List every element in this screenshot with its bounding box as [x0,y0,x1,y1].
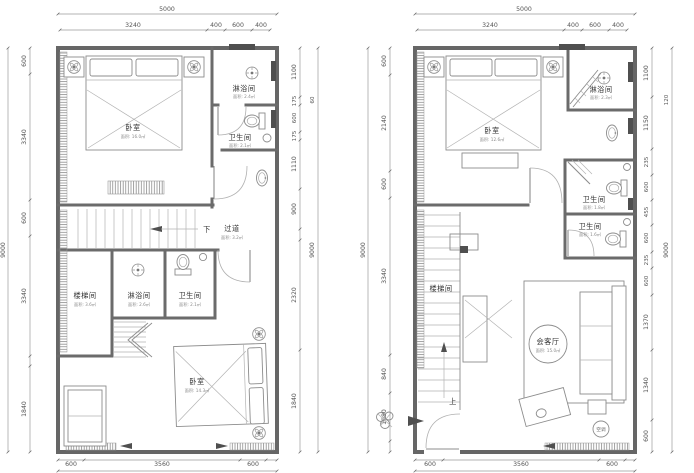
wardrobe [64,386,106,446]
balcony-rail-hatch [417,52,424,202]
room-area-bedroom-upper: 面积: 16.0㎡ [121,133,146,140]
room-label-toilet-upper: 卫生间 [228,133,251,142]
window-vent [229,44,255,50]
dim-label: 400 [567,22,579,29]
dim-label: 600 [21,212,28,224]
room-area-bedroom-lower: 面积: 14.3㎡ [185,387,210,394]
dim-label: 600 [247,461,259,468]
dim-label: 120 [664,94,670,105]
plant-icon [547,61,560,74]
room-area-toilet-upper: 面积: 2.1㎡ [229,142,252,149]
dim-label: 600 [606,461,618,468]
ac-label: 空调 [596,426,606,433]
room-label-stairwell: 楼梯间 [73,291,96,300]
plant-icon [253,427,266,440]
dim-label: 1100 [291,64,298,80]
window-vent [559,44,585,50]
dim-label: 400 [612,22,624,29]
room-area-shower-lower: 面积: 2.6㎡ [128,301,151,308]
room-area-stairwell: 面积: 3.6㎡ [74,301,97,308]
room-area-bedroom: 面积: 12.6㎡ [480,136,505,143]
room-label-toilet-lower: 卫生间 [178,291,201,300]
dim-label: 9000 [360,242,367,258]
room-label-bedroom: 卧室 [484,126,499,135]
side-table [588,400,606,414]
dim-label: 840 [381,368,388,380]
dim-label: 3340 [21,129,28,145]
dim-label: 1840 [21,401,28,417]
dim-label: 3240 [125,22,141,29]
wall-fixture [271,110,276,128]
room-label-living: 会客厅 [536,337,559,346]
room-area-toilet-2: 面积: 1.6㎡ [579,231,602,238]
down-label: 下 [203,225,211,234]
room-area-living: 面积: 15.0㎡ [536,347,561,354]
wall-fixture [271,61,276,81]
dim-label: 2140 [381,115,388,131]
dim-label: 600 [381,178,388,190]
dim-label: 600 [644,232,650,243]
plant-icon [188,61,201,74]
wall-fixture [628,118,633,134]
floor-grille-hatch [230,443,274,450]
room-label-corridor: 过道 [224,224,239,233]
room-label-shower-upper: 淋浴间 [232,84,255,93]
desk [462,153,518,168]
dim-label: 600 [644,275,650,286]
plant-icon [253,328,266,341]
bed-lower [174,343,269,426]
dim-label: 600 [644,181,650,192]
floor-grille-hatch [545,443,629,450]
dim-label: 600 [292,112,298,123]
room-area-toilet-lower: 面积: 2.1㎡ [179,301,202,308]
room-label-bedroom-lower: 卧室 [189,377,204,386]
room-label-stairwell: 楼梯间 [429,284,452,293]
dim-label: 600 [232,22,244,29]
dim-label: 9000 [309,242,316,258]
dim-label: 5000 [159,6,175,13]
room-label-toilet-1: 卫生间 [582,195,605,204]
dim-label: 3340 [381,268,388,284]
dim-label: 600 [424,461,436,468]
dim-label: 600 [589,22,601,29]
balcony-rail-hatch [417,210,424,368]
balcony-rail-hatch [60,210,67,352]
dim-label: 1110 [291,156,298,172]
room-label-toilet-2: 卫生间 [578,222,601,231]
dim-label: 1840 [291,393,298,409]
sofa [580,286,626,400]
dim-label: 600 [643,430,650,442]
dim-label: 600 [21,55,28,67]
dim-label: 3340 [21,288,28,304]
dim-label: 455 [644,206,650,217]
up-label: 上 [449,397,457,406]
dim-label: 2320 [291,287,298,303]
floor-plans-canvas: 5000 3240 400 600 400 9000 600 3340 600 … [0,0,694,473]
plant-icon [68,61,81,74]
dim-label: 1150 [643,115,650,131]
room-area-shower: 面积: 2.3㎡ [590,94,613,101]
dim-label: 3560 [513,461,529,468]
bed [446,56,541,150]
entry-opening [424,446,460,455]
dim-label: 5000 [516,6,532,13]
sink-icon [607,125,618,141]
room-area-shower-upper: 面积: 2.4㎡ [233,93,256,100]
dim-label: 600 [381,55,388,67]
sink-icon [257,170,268,186]
room-label-shower-lower: 淋浴间 [127,291,150,300]
radiator-hatch [108,181,164,194]
floor-plan-sheet: 5000 3240 400 600 400 9000 600 3340 600 … [0,0,694,473]
dim-label: 400 [210,22,222,29]
dim-label: 175 [292,95,298,106]
room-area-toilet-1: 面积: 1.8㎡ [583,204,606,211]
dim-label: 3240 [482,22,498,29]
plant-icon [428,61,441,74]
dim-label: 235 [644,156,650,167]
dim-label: 235 [644,254,650,265]
dim-label: 9000 [663,242,670,258]
dim-label: 600 [65,461,77,468]
dim-label: 9000 [0,242,7,258]
dim-label: 175 [292,130,298,141]
shower-head-icon [132,264,144,276]
dim-label: 900 [291,203,298,215]
room-area-corridor: 面积: 3.2㎡ [221,234,244,241]
wall-fixture [628,198,633,210]
dim-label: 1340 [643,377,650,393]
dim-label: 400 [255,22,267,29]
room-label-bedroom-upper: 卧室 [125,123,140,132]
shower-head-icon [246,67,258,79]
wall-fixture [628,62,633,82]
dim-label: 1370 [643,314,650,330]
dim-label: 3560 [154,461,170,468]
dim-label: 1100 [643,65,650,81]
dim-label: 60 [310,96,316,104]
room-label-shower: 淋浴间 [589,85,612,94]
